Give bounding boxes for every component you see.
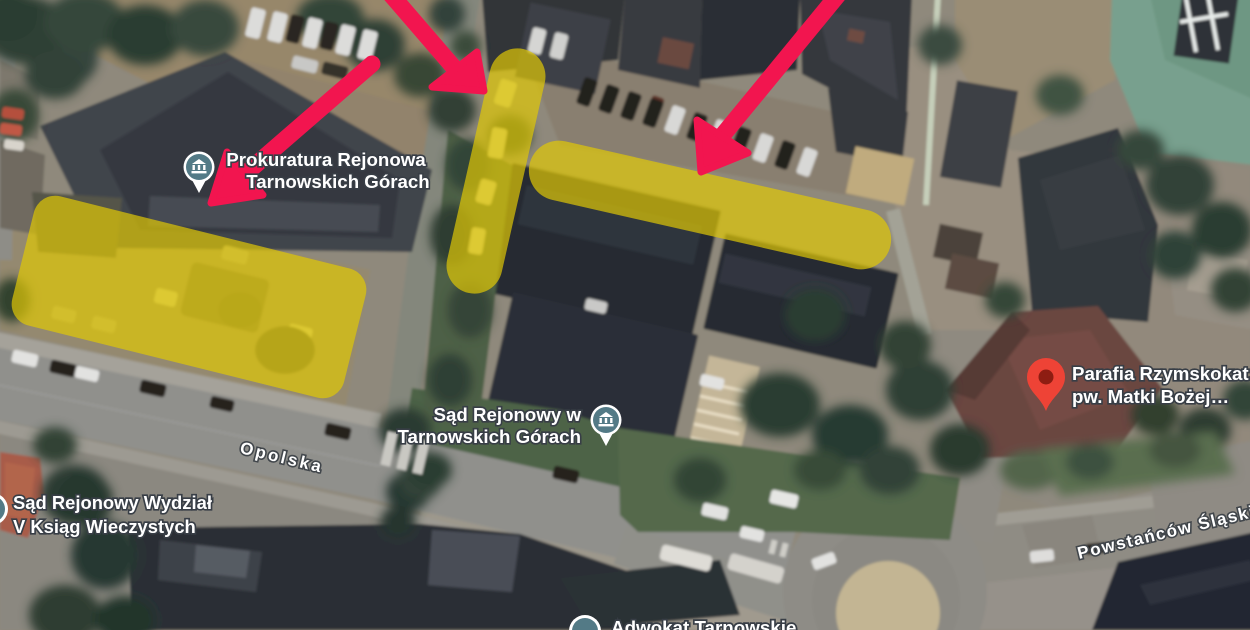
svg-text:Prokuratura Rejonowa: Prokuratura Rejonowa [226,149,426,170]
svg-text:Sąd Rejonowy w: Sąd Rejonowy w [434,404,582,425]
svg-text:pw. Matki Bożej…: pw. Matki Bożej… [1072,386,1229,407]
svg-text:V Ksiąg Wieczystych: V Ksiąg Wieczystych [13,516,196,537]
svg-text:Sąd Rejonowy Wydział: Sąd Rejonowy Wydział [13,492,212,513]
svg-text:Parafia Rzymskokat: Parafia Rzymskokat [1072,363,1249,384]
svg-text:Tarnowskich Górach: Tarnowskich Górach [246,171,429,192]
svg-text:Adwokat Tarnowskie: Adwokat Tarnowskie [611,617,796,630]
svg-text:Tarnowskich Górach: Tarnowskich Górach [398,426,581,447]
